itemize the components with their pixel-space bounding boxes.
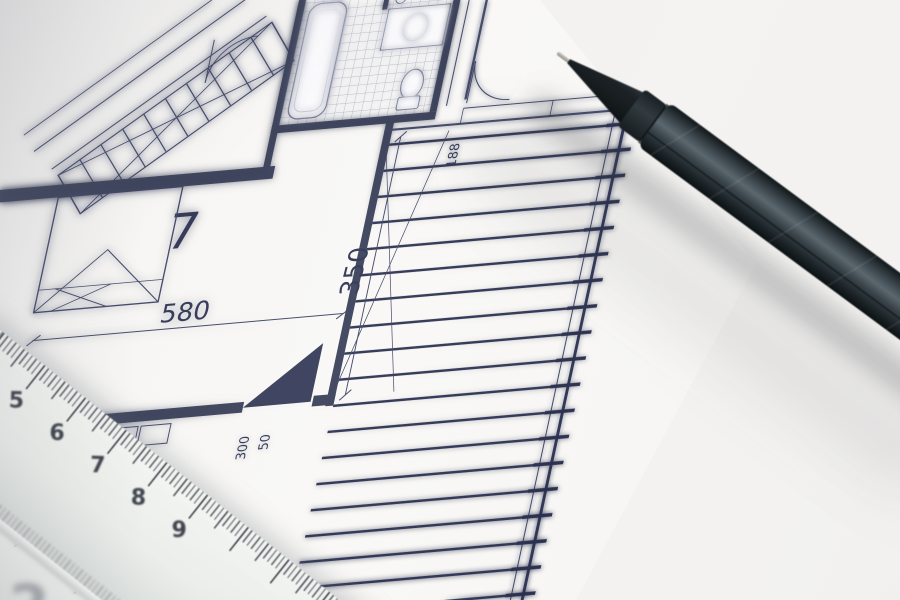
ruler-embossed-number: 2	[8, 572, 50, 600]
ruler-number: 9	[171, 518, 187, 543]
ruler-number: 8	[130, 485, 146, 510]
ruler-number: 6	[49, 421, 65, 446]
ruler-number: 5	[8, 388, 24, 413]
ruler-number: 7	[90, 453, 106, 478]
photo-scene: 60 7	[0, 0, 900, 600]
